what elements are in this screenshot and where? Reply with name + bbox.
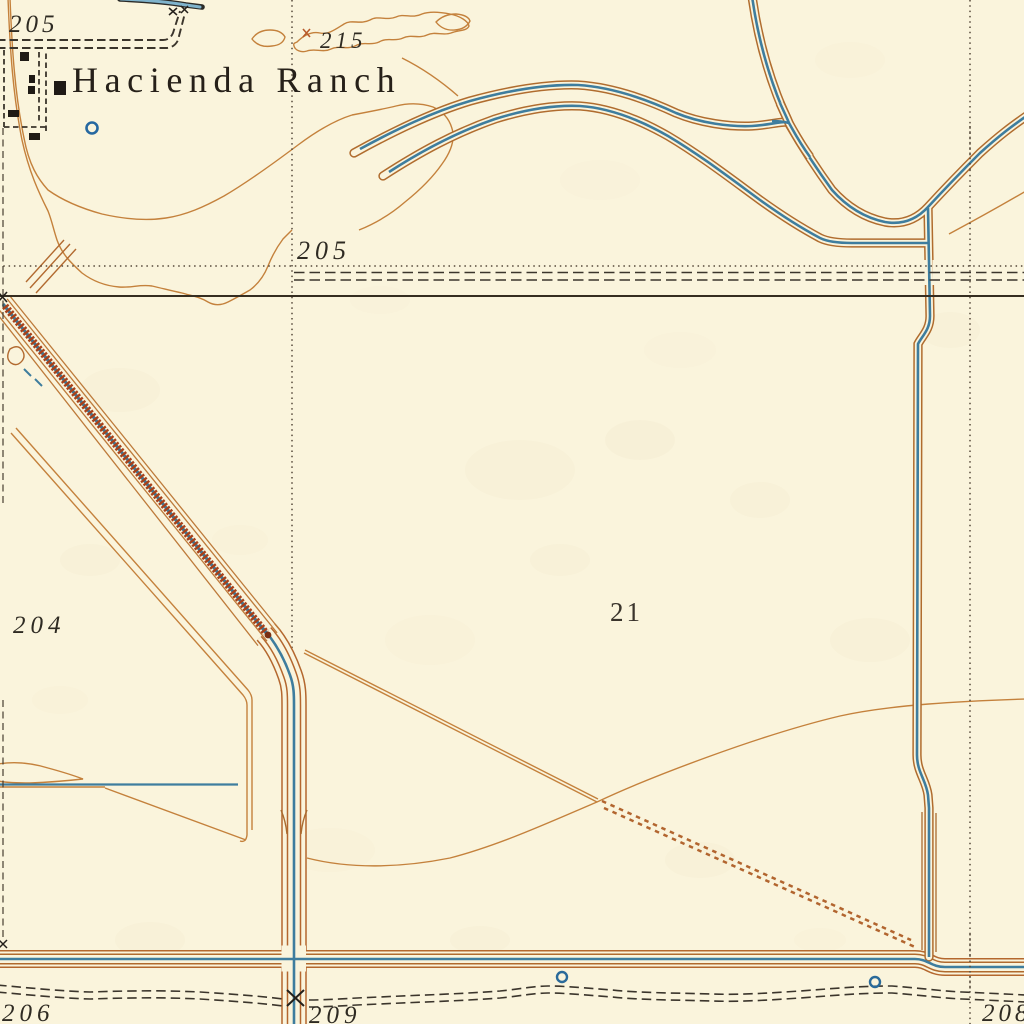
svg-text:Hacienda Ranch: Hacienda Ranch [72, 60, 401, 100]
svg-text:205: 205 [297, 236, 351, 265]
svg-text:208: 208 [982, 1000, 1024, 1024]
svg-text:205: 205 [9, 11, 59, 38]
svg-text:209: 209 [309, 1002, 362, 1024]
svg-text:204: 204 [13, 612, 66, 639]
svg-text:206: 206 [2, 1000, 55, 1024]
svg-text:21: 21 [610, 597, 643, 627]
svg-text:215: 215 [320, 28, 367, 53]
